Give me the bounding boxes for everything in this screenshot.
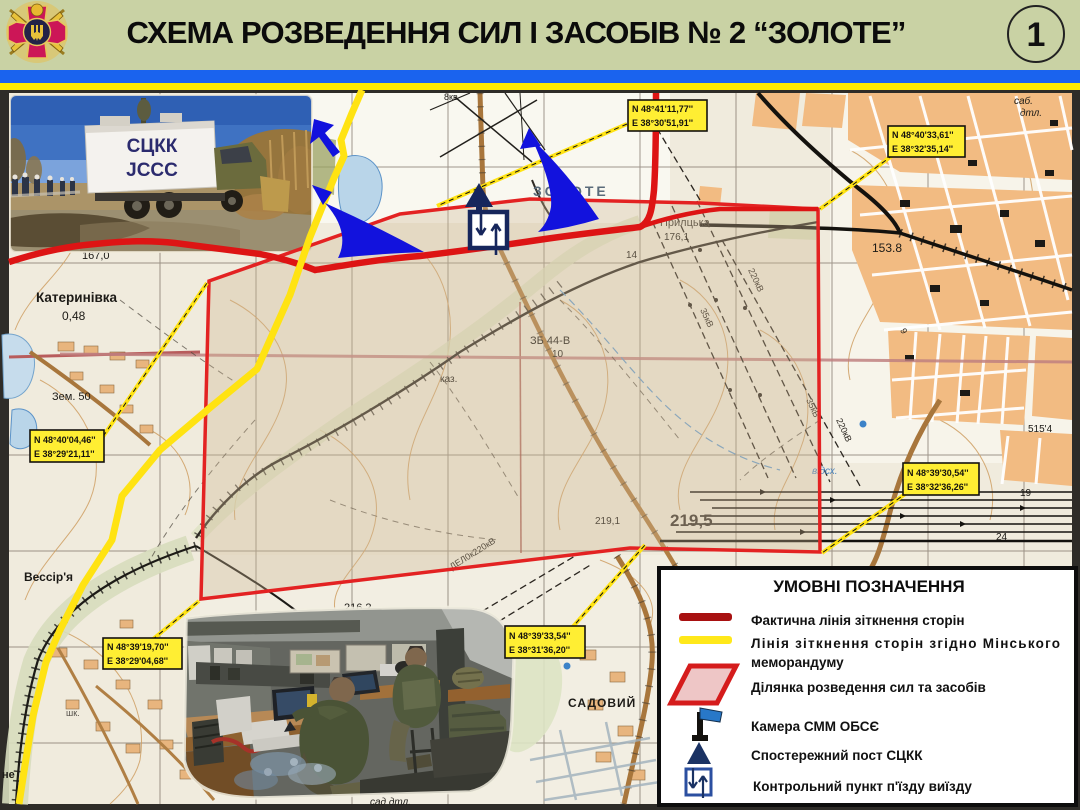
svg-text:УМОВНІ ПОЗНАЧЕННЯ: УМОВНІ ПОЗНАЧЕННЯ (773, 577, 964, 596)
svg-text:Лінія зіткнення сторін згідно: Лінія зіткнення сторін згідно Мінського (751, 636, 1060, 651)
svg-text:сад дтл.: сад дтл. (370, 797, 411, 808)
svg-text:саб.: саб. (1014, 95, 1033, 107)
svg-text:N 48°40'33,61'': N 48°40'33,61'' (892, 130, 954, 140)
svg-text:19: 19 (1020, 488, 1032, 499)
svg-text:N 48°39'19,70'': N 48°39'19,70'' (107, 642, 169, 652)
svg-text:Спостережний пост СЦКК: Спостережний пост СЦКК (751, 748, 923, 763)
svg-text:JCCC: JCCC (126, 160, 178, 181)
svg-text:Фактична лінія зіткнення сторі: Фактична лінія зіткнення сторін (751, 613, 965, 628)
svg-text:Катеринівка: Катеринівка (36, 290, 118, 305)
svg-text:515'4: 515'4 (1028, 424, 1053, 435)
svg-text:N 48°39'30,54'': N 48°39'30,54'' (907, 468, 969, 478)
svg-text:E 38°29'21,11'': E 38°29'21,11'' (34, 449, 95, 459)
svg-text:0,48: 0,48 (62, 309, 86, 323)
svg-text:СХЕМА РОЗВЕДЕННЯ СИЛ І ЗАСОБІВ: СХЕМА РОЗВЕДЕННЯ СИЛ І ЗАСОБІВ № 2 “ЗОЛО… (126, 15, 905, 50)
svg-text:меморандуму: меморандуму (751, 655, 844, 670)
svg-text:Ділянка розведення сил та засо: Ділянка розведення сил та засобів (751, 680, 986, 695)
svg-text:не: не (2, 769, 15, 781)
svg-text:E 38°29'04,68'': E 38°29'04,68'' (107, 656, 168, 666)
svg-text:8кв: 8кв (444, 92, 458, 102)
svg-text:E 38°31'36,20'': E 38°31'36,20'' (509, 645, 570, 655)
svg-text:шк.: шк. (66, 708, 80, 718)
svg-text:24: 24 (996, 532, 1008, 543)
svg-text:1: 1 (1027, 16, 1046, 54)
svg-text:Вессір'я: Вессір'я (24, 570, 73, 584)
svg-text:E 38°32'36,26'': E 38°32'36,26'' (907, 482, 968, 492)
svg-text:Камера СММ ОБСЄ: Камера СММ ОБСЄ (751, 719, 880, 734)
svg-text:N 48°41'11,77'': N 48°41'11,77'' (632, 104, 693, 114)
svg-text:N 48°39'33,54'': N 48°39'33,54'' (509, 631, 571, 641)
svg-text:САДОВИЙ: САДОВИЙ (568, 695, 636, 710)
svg-text:153.8: 153.8 (872, 241, 902, 255)
svg-text:Зем. 50: Зем. 50 (52, 391, 91, 403)
svg-text:дтл.: дтл. (1020, 108, 1042, 119)
svg-text:E 38°30'51,91'': E 38°30'51,91'' (632, 118, 693, 128)
svg-text:E 38°32'35,14'': E 38°32'35,14'' (892, 144, 953, 154)
svg-text:N 48°40'04,46'': N 48°40'04,46'' (34, 435, 96, 445)
svg-text:Контрольний пункт п'їзду виїзд: Контрольний пункт п'їзду виїзду (753, 779, 972, 794)
svg-text:СЦКК: СЦКК (127, 136, 178, 157)
